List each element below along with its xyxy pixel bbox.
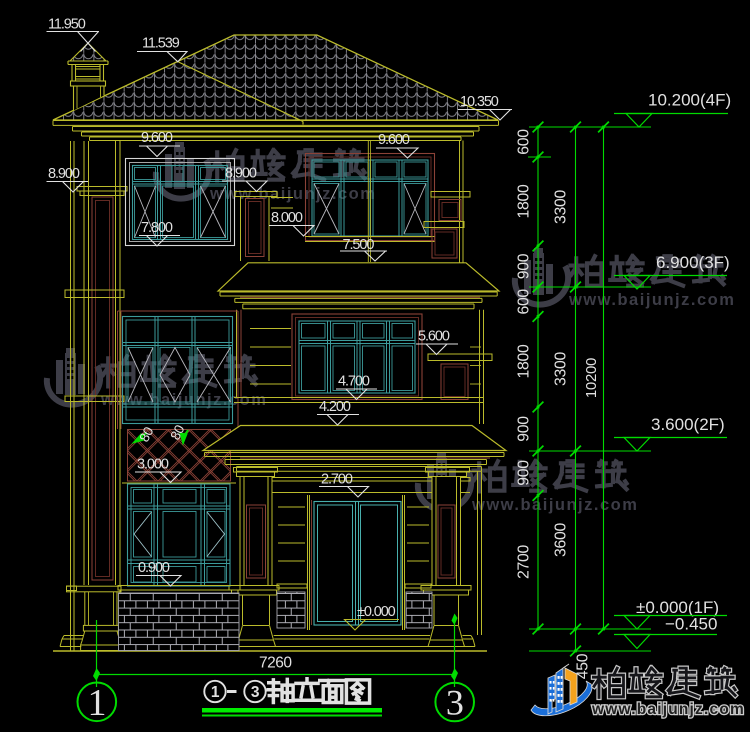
svg-text:2.700: 2.700 [321,472,353,488]
svg-text:3300: 3300 [553,190,570,224]
svg-text:900: 900 [516,460,533,486]
svg-text:0.900: 0.900 [138,560,170,576]
svg-text:7.800: 7.800 [141,220,173,236]
svg-text:10200: 10200 [583,358,600,398]
svg-text:7260: 7260 [259,655,292,672]
svg-text:1800: 1800 [516,184,533,218]
svg-text:600: 600 [516,129,533,155]
svg-text:11.950: 11.950 [48,17,86,33]
svg-text:900: 900 [516,253,533,279]
svg-text:10.350: 10.350 [460,94,499,110]
svg-text:8.900: 8.900 [225,166,257,182]
svg-text:±0.000: ±0.000 [357,604,396,620]
svg-text:1800: 1800 [516,344,533,378]
svg-text:www.baijunjz.com: www.baijunjz.com [591,701,745,718]
svg-text:9.600: 9.600 [378,132,410,148]
svg-text:1: 1 [211,684,220,701]
svg-text:−0.450: −0.450 [665,615,717,634]
svg-text:6.900(3F): 6.900(3F) [656,253,730,272]
svg-text:600: 600 [516,289,533,315]
svg-text:3600: 3600 [553,523,570,557]
svg-text:4.200: 4.200 [319,399,351,415]
svg-text:3300: 3300 [553,352,570,386]
svg-text:900: 900 [516,416,533,442]
svg-text:4.700: 4.700 [338,374,370,390]
svg-text:1: 1 [87,682,106,724]
svg-text:11.539: 11.539 [142,36,180,52]
svg-text:8.000: 8.000 [271,210,303,226]
svg-text:www.baijunjz.com: www.baijunjz.com [100,391,267,409]
svg-text:2700: 2700 [516,545,533,579]
svg-text:3.000: 3.000 [137,457,169,473]
svg-text:www.baijunjz.com: www.baijunjz.com [471,496,638,514]
svg-text:www.baijunjz.com: www.baijunjz.com [568,291,735,309]
svg-text:9.600: 9.600 [141,130,173,146]
svg-text:8.900: 8.900 [48,166,80,182]
svg-text:3.600(2F): 3.600(2F) [651,415,725,434]
svg-text:3: 3 [446,683,464,723]
svg-text:10.200(4F): 10.200(4F) [648,91,731,110]
svg-text:5.600: 5.600 [418,329,450,345]
svg-text:3: 3 [251,684,260,701]
